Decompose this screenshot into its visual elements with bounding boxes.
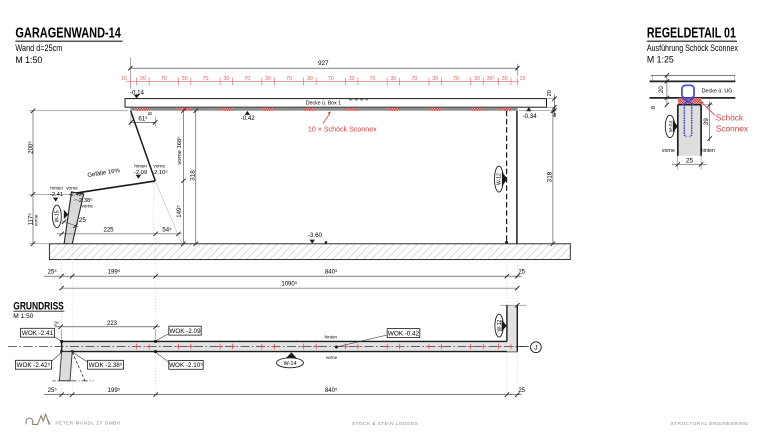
svg-text:Decke ü. Box 1: Decke ü. Box 1 (306, 100, 341, 106)
svg-text:W-14: W-14 (283, 361, 296, 367)
svg-text:840⁵: 840⁵ (325, 387, 338, 394)
svg-text:W-XX: W-XX (668, 120, 673, 132)
svg-text:GRUNDRISS: GRUNDRISS (13, 300, 64, 312)
svg-text:15: 15 (121, 76, 127, 82)
svg-text:REGELDETAIL 01: REGELDETAIL 01 (647, 26, 736, 42)
svg-text:223: 223 (107, 321, 118, 327)
svg-text:30: 30 (265, 76, 271, 82)
svg-text:20: 20 (547, 90, 553, 96)
svg-text:30: 30 (307, 76, 313, 82)
svg-text:GARAGENWAND-14: GARAGENWAND-14 (15, 26, 121, 42)
svg-text:8: 8 (651, 106, 657, 109)
svg-text:hinten: hinten (325, 334, 338, 339)
svg-text:M 1:50: M 1:50 (13, 313, 33, 320)
svg-text:199⁵: 199⁵ (108, 269, 121, 276)
svg-text:225: 225 (103, 228, 114, 234)
svg-text:WOK -0.42: WOK -0.42 (388, 330, 420, 337)
svg-text:25: 25 (79, 217, 87, 224)
svg-text:-2.41: -2.41 (50, 192, 63, 198)
svg-text:STRUCTURAL ENGINEERING: STRUCTURAL ENGINEERING (671, 421, 749, 427)
svg-text:vorne: vorne (326, 355, 338, 360)
svg-text:199⁵: 199⁵ (108, 387, 121, 394)
svg-text:70: 70 (244, 76, 250, 82)
svg-text:25⁵: 25⁵ (48, 269, 58, 276)
svg-text:Ausführung Schöck Sconnex: Ausführung Schöck Sconnex (647, 43, 738, 53)
svg-text:30: 30 (349, 76, 355, 82)
svg-text:hinten: hinten (50, 185, 63, 190)
svg-text:-3.60: -3.60 (308, 232, 323, 239)
svg-text:30: 30 (140, 76, 146, 82)
svg-text:vorne: vorne (66, 185, 78, 190)
svg-text:30: 30 (223, 76, 229, 82)
svg-text:WOK -2.42⁵: WOK -2.42⁵ (17, 362, 51, 369)
svg-text:30: 30 (432, 76, 438, 82)
svg-text:vorne: vorne (82, 204, 94, 209)
svg-text:vorne: vorne (154, 163, 166, 168)
svg-text:70: 70 (328, 76, 334, 82)
svg-text:318: 318 (547, 171, 554, 182)
svg-text:Sconnex: Sconnex (716, 123, 749, 133)
svg-text:W-12: W-12 (497, 173, 503, 185)
svg-text:927: 927 (318, 60, 329, 67)
svg-text:2¹: 2¹ (54, 321, 59, 327)
svg-text:1090⁵: 1090⁵ (281, 280, 297, 287)
svg-text:vorne: vorne (34, 214, 39, 226)
svg-text:hinten: hinten (701, 148, 715, 154)
svg-text:W-15: W-15 (55, 210, 61, 222)
svg-text:-2.42⁵: -2.42⁵ (69, 191, 85, 198)
svg-text:70: 70 (161, 76, 167, 82)
svg-text:30: 30 (182, 76, 188, 82)
svg-text:10 × Schöck Sconnex: 10 × Schöck Sconnex (308, 126, 377, 134)
svg-text:54⁵: 54⁵ (162, 226, 172, 233)
svg-text:25: 25 (518, 388, 525, 394)
svg-text:200⁵: 200⁵ (27, 141, 34, 154)
svg-text:8: 8 (148, 112, 154, 115)
svg-text:25: 25 (686, 157, 694, 164)
svg-text:30: 30 (474, 76, 480, 82)
svg-text:WOK -2.38⁵: WOK -2.38⁵ (89, 362, 123, 369)
svg-text:70: 70 (370, 76, 376, 82)
svg-text:15: 15 (520, 76, 526, 82)
svg-text:J: J (534, 345, 537, 352)
svg-text:STOCK & STEIN LODGES: STOCK & STEIN LODGES (352, 421, 419, 427)
svg-text:M 1:25: M 1:25 (647, 54, 674, 64)
svg-text:hinten: hinten (134, 163, 147, 168)
svg-text:61⁵: 61⁵ (138, 115, 148, 122)
svg-text:Decke ü. UG: Decke ü. UG (702, 88, 733, 94)
svg-text:70: 70 (203, 76, 209, 82)
svg-text:WOK -2.10⁵: WOK -2.10⁵ (169, 362, 203, 369)
svg-text:Schöck: Schöck (716, 112, 744, 122)
svg-text:-2.10⁵: -2.10⁵ (152, 169, 168, 176)
svg-text:25⁵: 25⁵ (48, 387, 58, 394)
svg-text:70: 70 (453, 76, 459, 82)
svg-text:318: 318 (190, 170, 197, 181)
svg-text:Wand d=25cm: Wand d=25cm (15, 43, 62, 53)
svg-text:30: 30 (502, 76, 508, 82)
svg-text:20: 20 (658, 86, 665, 94)
svg-text:70: 70 (411, 76, 417, 82)
svg-text:vorne 168⁵: vorne 168⁵ (176, 136, 183, 165)
svg-text:-0.42: -0.42 (241, 115, 256, 122)
svg-text:70: 70 (286, 76, 292, 82)
svg-text:-0.34: -0.34 (523, 113, 538, 120)
svg-text:M 1:50: M 1:50 (15, 55, 42, 65)
svg-text:WOK -2.09: WOK -2.09 (169, 328, 201, 335)
svg-text:36⁵: 36⁵ (487, 76, 495, 82)
svg-text:39: 39 (703, 118, 710, 126)
svg-text:8: 8 (553, 113, 556, 119)
svg-text:PETER MANDL ZT GMBH: PETER MANDL ZT GMBH (55, 421, 121, 427)
svg-text:30: 30 (390, 76, 396, 82)
svg-text:840⁵: 840⁵ (325, 269, 338, 276)
svg-text:149⁵: 149⁵ (176, 205, 183, 218)
svg-text:25: 25 (518, 270, 525, 276)
svg-text:vorne: vorne (662, 148, 675, 154)
svg-text:WOK -2.41: WOK -2.41 (22, 330, 54, 337)
